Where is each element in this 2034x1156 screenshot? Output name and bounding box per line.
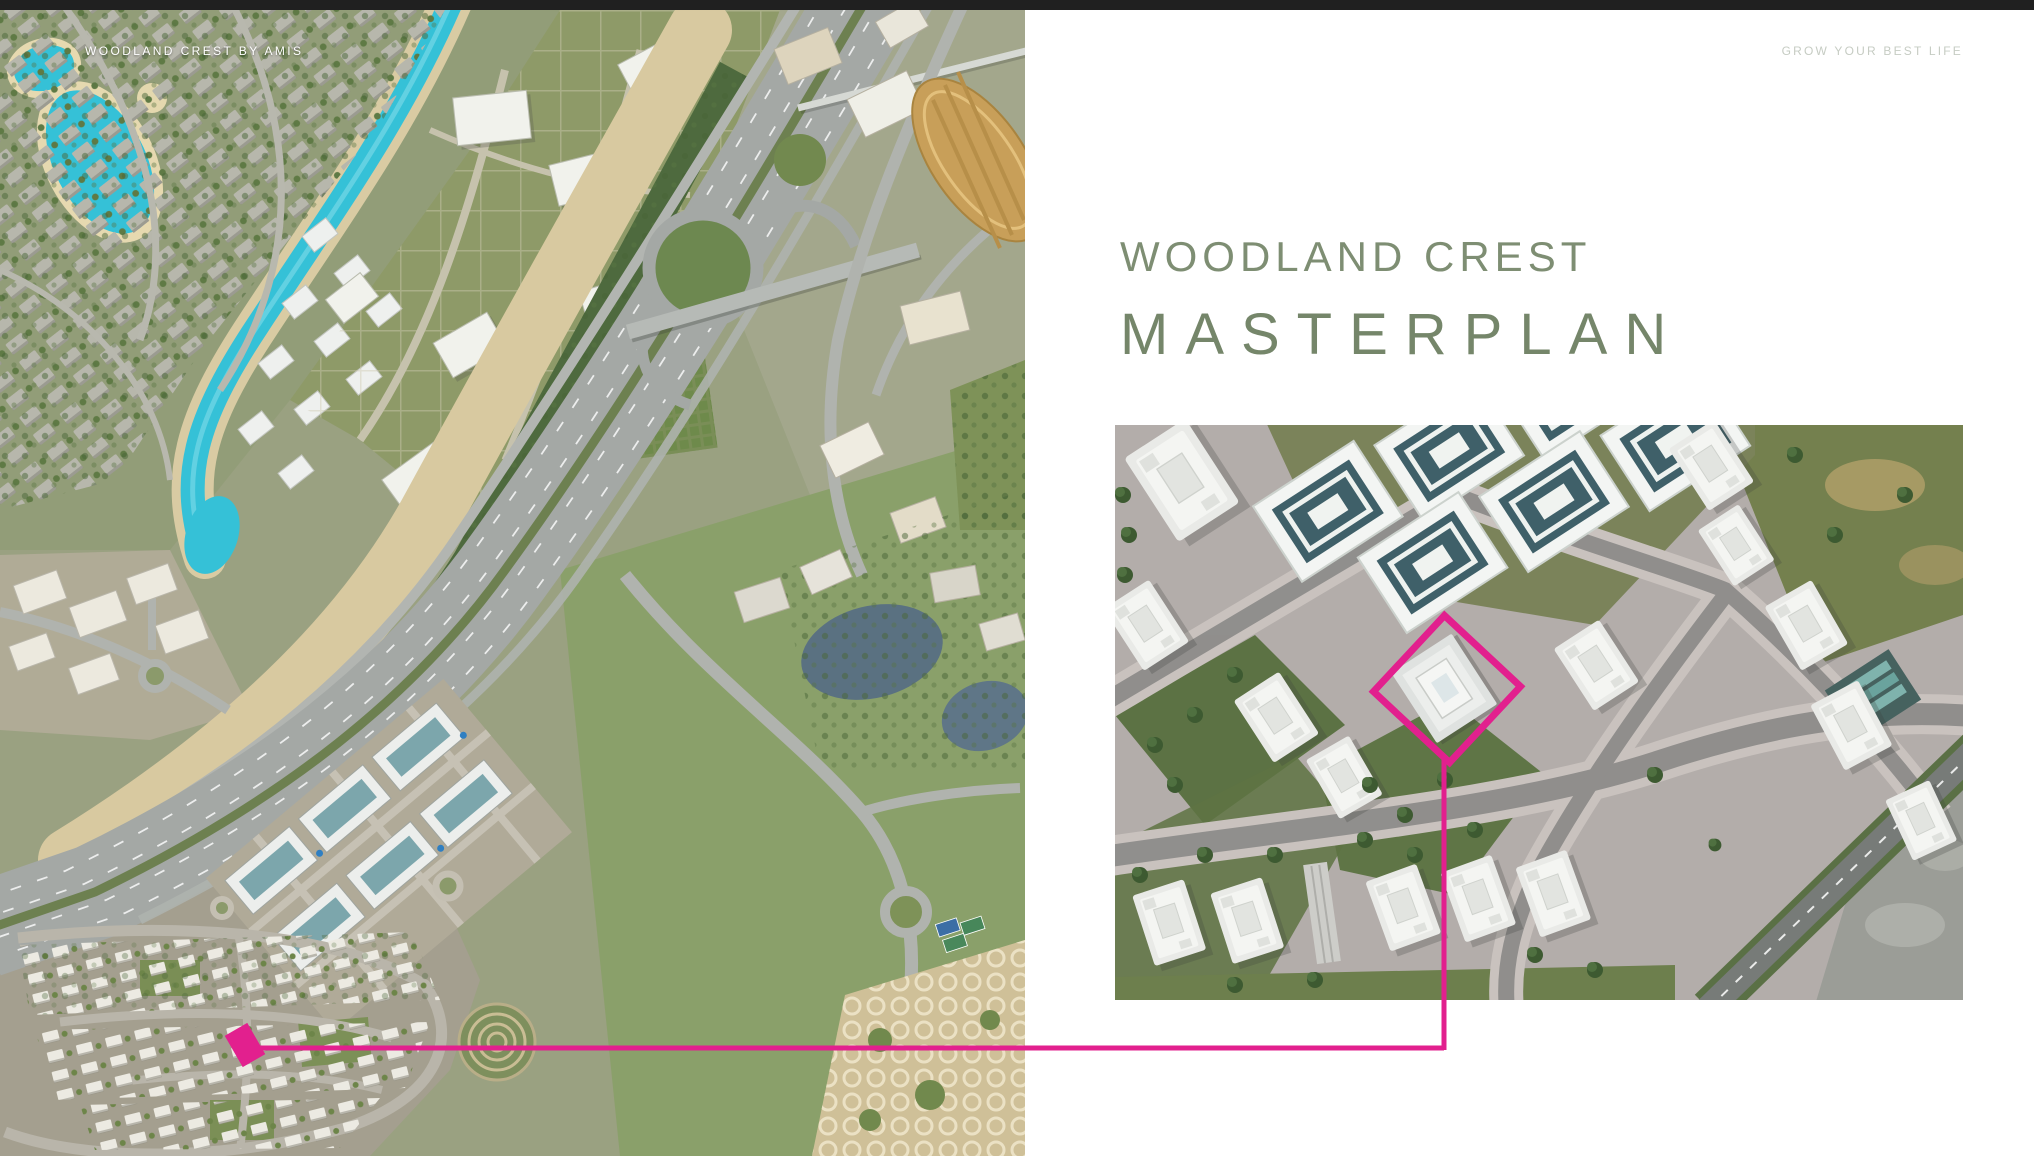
title-masterplan: MASTERPLAN (1120, 306, 1683, 364)
title-project-name: WOODLAND CREST (1120, 236, 1683, 278)
satellite-map (0, 10, 1025, 1156)
tagline-label: GROW YOUR BEST LIFE (1782, 44, 1963, 58)
top-bar (0, 0, 2034, 10)
page-title: WOODLAND CREST MASTERPLAN (1120, 236, 1683, 364)
masterplan-inset (1115, 425, 1963, 1000)
brand-label: WOODLAND CREST BY AMIS (85, 44, 303, 58)
